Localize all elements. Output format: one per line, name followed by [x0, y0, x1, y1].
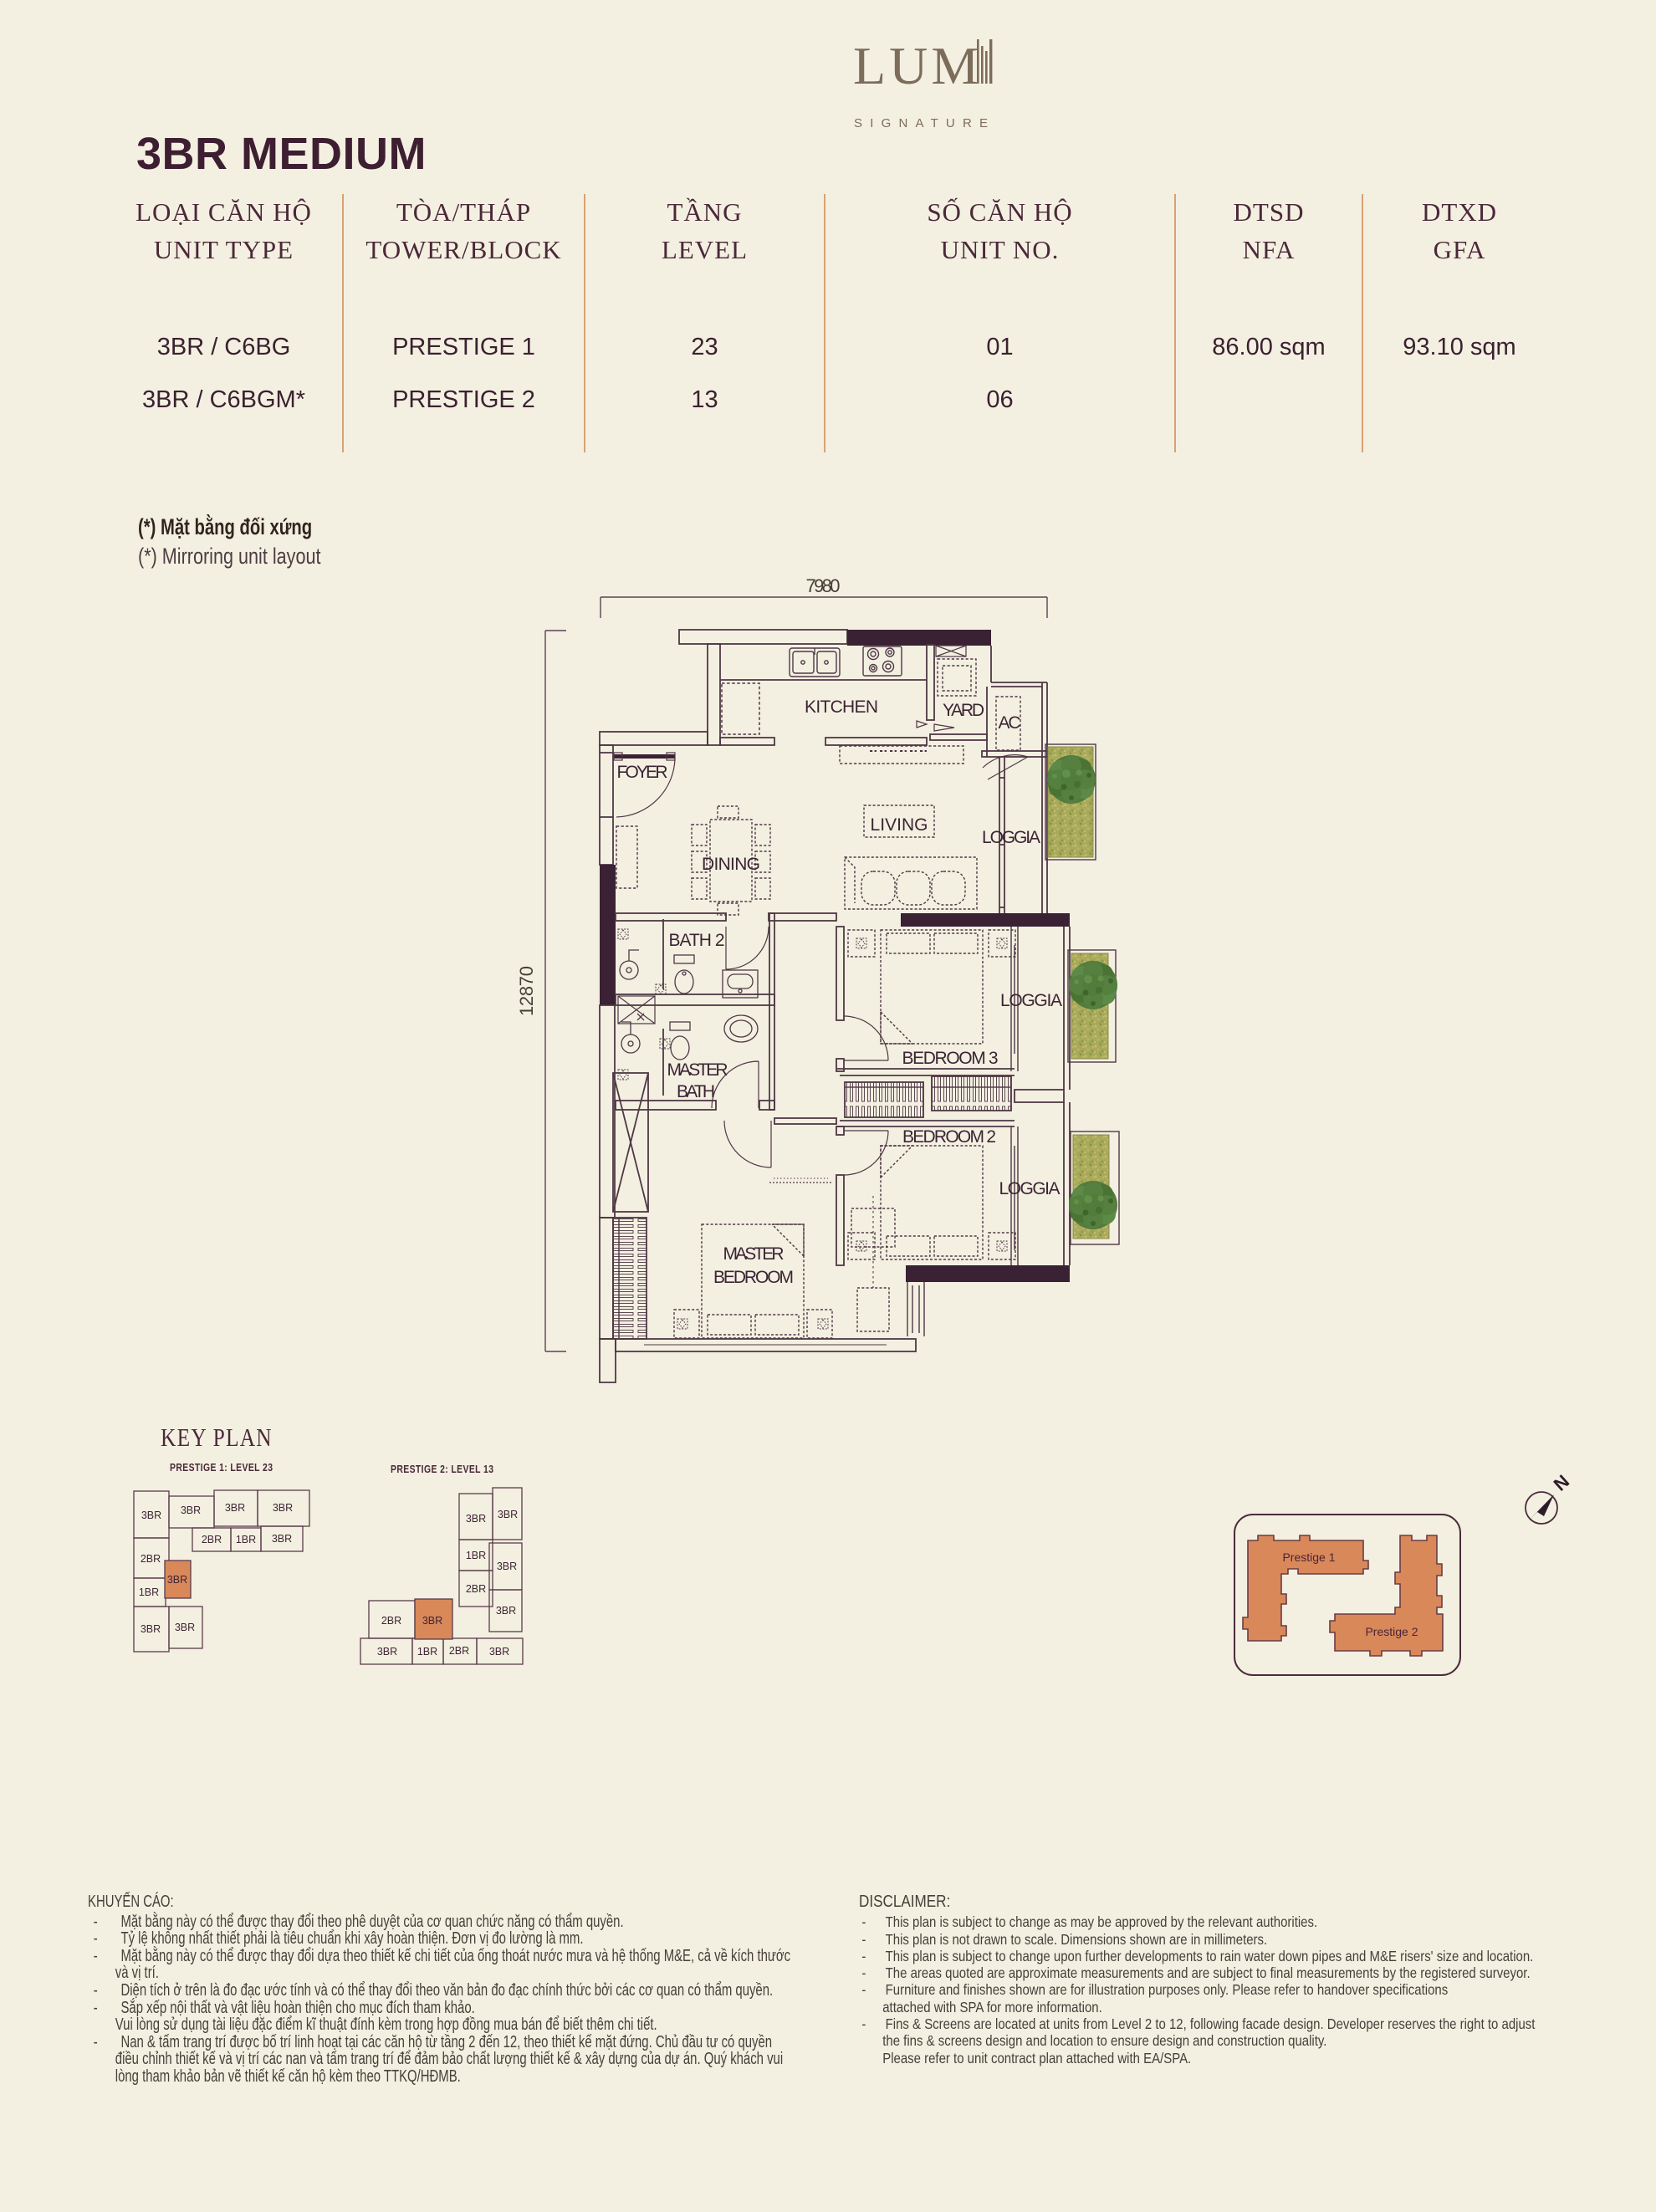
svg-text:1BR: 1BR [139, 1586, 159, 1598]
svg-text:3BR: 3BR [175, 1622, 195, 1633]
svg-text:3BR: 3BR [225, 1502, 245, 1514]
svg-text:3BR: 3BR [141, 1623, 161, 1635]
svg-text:3BR: 3BR [272, 1533, 292, 1545]
svg-text:3BR: 3BR [498, 1509, 518, 1520]
svg-text:3BR: 3BR [273, 1502, 293, 1514]
svg-text:3BR: 3BR [497, 1561, 517, 1572]
svg-text:2BR: 2BR [141, 1553, 161, 1565]
svg-text:3BR: 3BR [466, 1513, 486, 1525]
svg-text:Prestige 2: Prestige 2 [1365, 1625, 1418, 1638]
svg-text:2BR: 2BR [466, 1583, 486, 1595]
svg-text:2BR: 2BR [449, 1645, 469, 1657]
svg-text:2BR: 2BR [202, 1534, 222, 1545]
svg-text:1BR: 1BR [417, 1646, 437, 1658]
svg-text:2BR: 2BR [381, 1615, 401, 1627]
svg-text:3BR: 3BR [422, 1615, 442, 1627]
svg-text:1BR: 1BR [236, 1534, 256, 1545]
svg-text:3BR: 3BR [181, 1504, 201, 1516]
svg-text:1BR: 1BR [466, 1550, 486, 1561]
svg-text:3BR: 3BR [489, 1646, 509, 1658]
svg-text:3BR: 3BR [167, 1574, 187, 1586]
svg-text:3BR: 3BR [496, 1605, 516, 1617]
svg-text:Prestige 1: Prestige 1 [1282, 1550, 1335, 1564]
svg-text:3BR: 3BR [377, 1646, 397, 1658]
svg-text:N: N [1550, 1471, 1574, 1495]
svg-text:3BR: 3BR [141, 1510, 161, 1521]
